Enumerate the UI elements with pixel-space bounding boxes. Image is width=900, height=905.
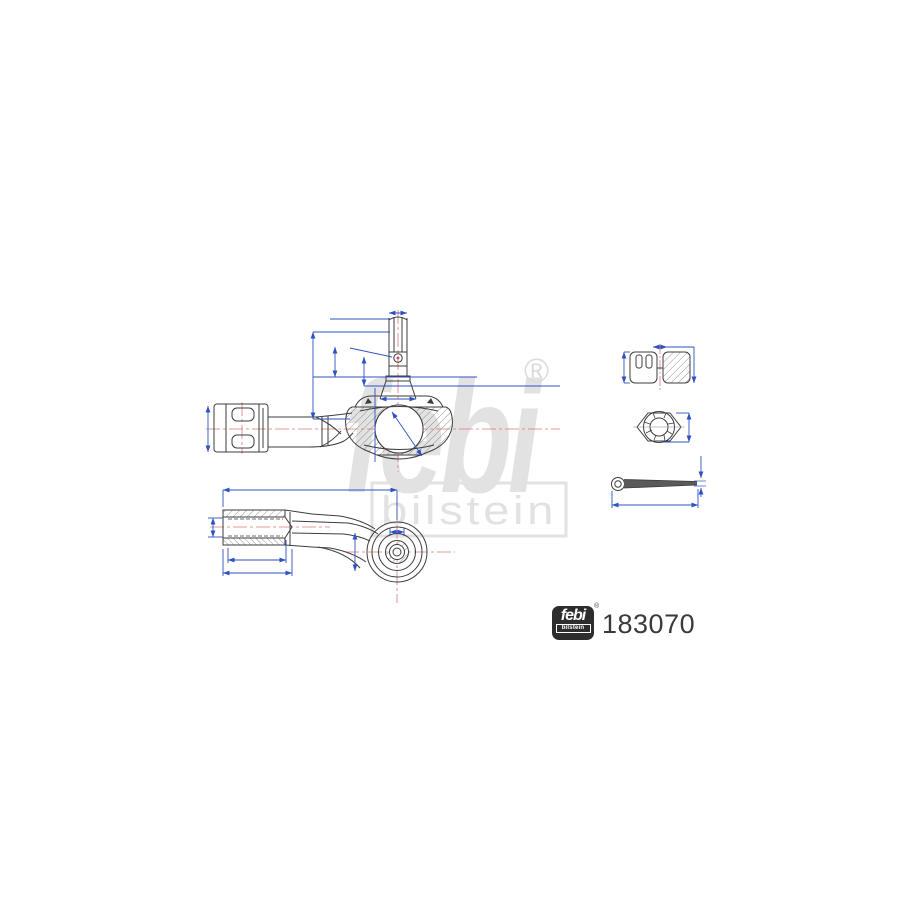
castle-nut-top-dimensions (662, 413, 689, 442)
cotter-pin-drawing (612, 456, 707, 508)
febi-logo-script: febi (552, 608, 594, 624)
tie-rod-arm-side (214, 404, 353, 452)
watermark-bilstein-text: bilstein (381, 489, 557, 533)
castle-nut-top-drawing (633, 412, 689, 443)
threaded-tube-section (223, 510, 312, 547)
product-image: febi ® bilstein (0, 0, 900, 900)
technical-drawing-canvas: febi ® bilstein (0, 0, 900, 900)
febi-logo-badge: febi bilstein (552, 606, 594, 640)
watermark-registered-icon: ® (524, 352, 549, 390)
part-number: 183070 (602, 608, 695, 640)
castle-nut-section-drawing (624, 344, 694, 390)
febi-logo-registered-icon: ® (594, 603, 599, 610)
febi-logo-bilstein: bilstein (556, 624, 591, 633)
